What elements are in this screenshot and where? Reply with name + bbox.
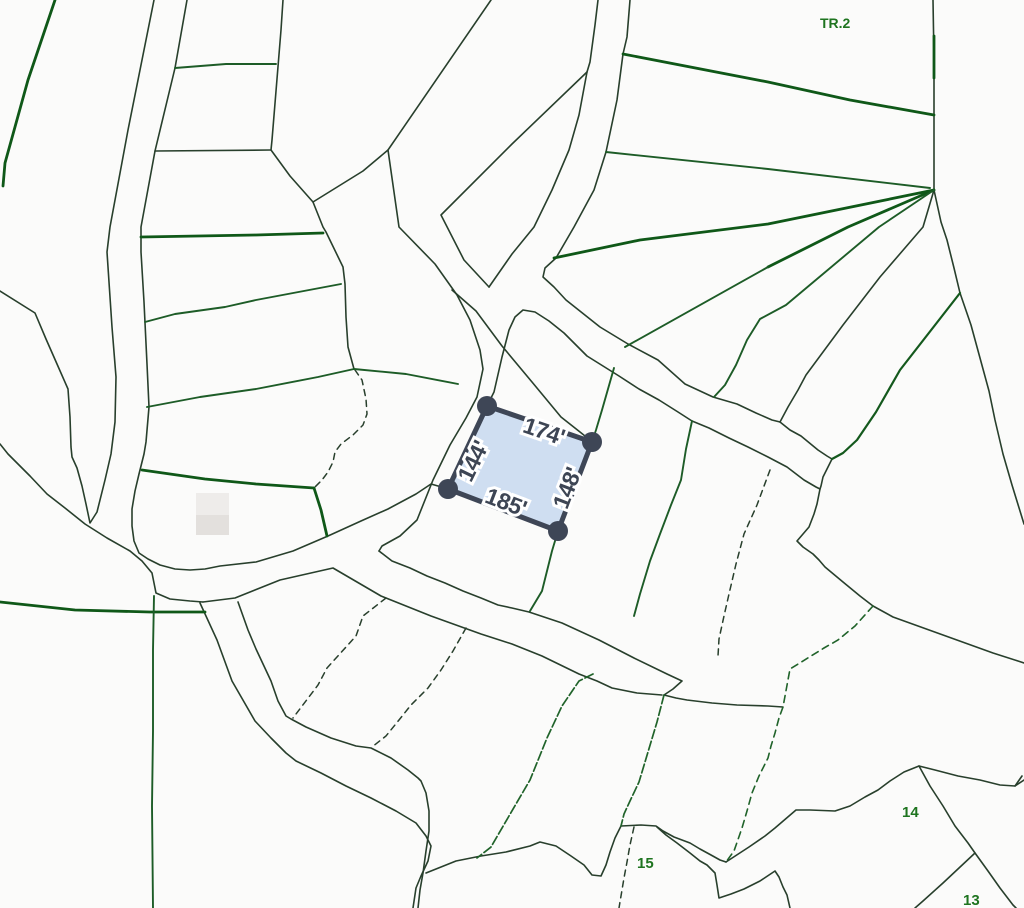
- svg-text:13: 13: [963, 892, 980, 908]
- svg-text:14: 14: [902, 804, 919, 821]
- svg-text:TR.2: TR.2: [820, 15, 851, 31]
- svg-text:15: 15: [637, 855, 654, 872]
